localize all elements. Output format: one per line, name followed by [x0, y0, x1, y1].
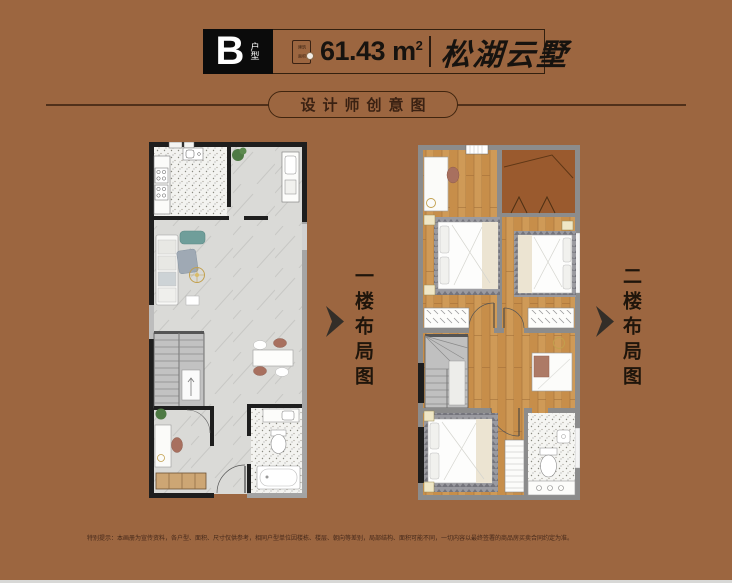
section-title-pill: 设计师创意图	[268, 91, 458, 118]
floor-plan-2f-image	[418, 145, 580, 500]
area-value: 61.43 m2	[320, 36, 422, 67]
seal-text-top: 建筑	[297, 45, 305, 49]
poster-canvas: B 户型 建筑 面积 61.43 m2 松湖云墅 设计师创意图	[0, 0, 732, 583]
floor1-layout-label: 一楼布局图	[349, 266, 376, 400]
header-frame: B 户型 建筑 面积 61.43 m2 松湖云墅	[203, 29, 545, 74]
unit-letter: B	[216, 31, 245, 71]
unit-type-label: 户型	[249, 42, 259, 60]
unit-type-box: B 户型	[203, 29, 273, 74]
header-divider	[429, 36, 431, 67]
seal-dot-icon	[306, 52, 314, 60]
floor2-layout-label: 二楼布局图	[617, 266, 644, 400]
arrow-right-icon-2f	[596, 306, 614, 337]
arrow-right-icon-1f	[326, 306, 344, 337]
project-name: 松湖云墅	[439, 30, 570, 74]
floor-plan-1f	[149, 142, 307, 498]
area-exponent: 2	[416, 38, 423, 53]
floor-plan-1f-image	[149, 142, 307, 498]
disclaimer-text: 特别提示：本画册为宣传资料，各户型、面积、尺寸仅供参考，相同户型单位因楼栋、楼层…	[87, 533, 651, 542]
area-seal-icon: 建筑 面积	[292, 40, 311, 64]
section-title-text: 设计师创意图	[293, 94, 432, 115]
seal-text-bottom: 面积	[297, 54, 305, 58]
floor-plan-2f	[418, 145, 580, 500]
